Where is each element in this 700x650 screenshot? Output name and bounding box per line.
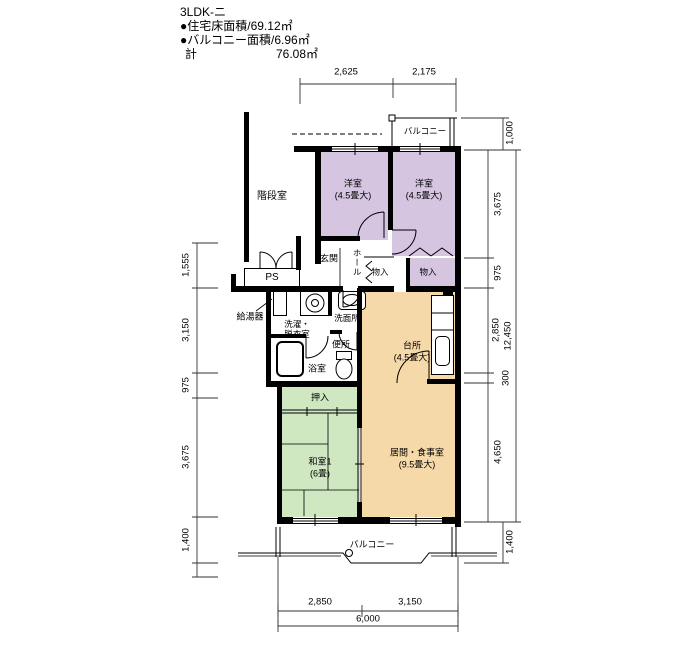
linework-overlay	[0, 0, 700, 650]
label-living-size: (9.5畳大)	[399, 460, 436, 471]
label-washitsu-name: 和室1	[308, 457, 331, 468]
wall-genkan-left	[296, 236, 301, 270]
total-label: 計	[185, 45, 197, 62]
label-water-heater: 給湯器	[236, 312, 263, 323]
toilet-tank-icon	[336, 351, 352, 360]
label-hall: ホール	[352, 249, 362, 278]
wall-washroom-toilet	[330, 330, 342, 334]
label-monoire1: 物入	[371, 267, 388, 277]
dim-right-1000: 1,000	[505, 121, 516, 145]
kitchen-sink-icon	[435, 336, 450, 366]
label-toilet: 便所	[332, 340, 350, 351]
dim-bottom-2: 3,150	[398, 597, 422, 608]
label-yoshitsu2-name: 洋室	[415, 179, 433, 190]
label-washroom: 洗面所	[334, 313, 360, 323]
dim-left-5: 1,400	[181, 528, 192, 552]
dim-bottom-1: 2,850	[308, 597, 332, 608]
wall-yoshitsu-divider	[388, 148, 393, 230]
label-stairwell: 階段室	[257, 191, 287, 203]
label-ps: PS	[265, 272, 278, 284]
wall-bottom-a	[277, 517, 293, 524]
label-oshiire: 押入	[311, 393, 329, 404]
wall-toilet-kitchen	[357, 288, 362, 385]
dim-left-4: 3,675	[181, 445, 192, 469]
toilet-bowl-icon	[336, 359, 352, 379]
dim-right-4650: 4,650	[493, 440, 504, 464]
wall-stair-left	[244, 112, 249, 262]
wall-laundry-right	[328, 288, 332, 316]
label-laundry-1: 洗濯・	[284, 319, 310, 329]
wall-mid-left	[231, 286, 343, 292]
label-balcony-top: バルコニー	[404, 126, 446, 136]
wall-bottom-b	[338, 517, 390, 524]
label-bath: 浴室	[308, 364, 326, 375]
dim-right-300: 300	[501, 370, 512, 386]
wall-bottom-c	[442, 517, 461, 524]
dim-top-1: 2,625	[334, 67, 358, 78]
dim-right-2850: 2,850	[491, 318, 502, 342]
dim-right-1400: 1,400	[505, 530, 516, 554]
washing-machine-icon	[300, 291, 330, 316]
label-kitchen-size: (4.5畳大)	[394, 353, 431, 364]
label-monoire2: 物入	[419, 267, 436, 277]
label-washitsu-size: (6畳)	[310, 469, 330, 480]
dim-left-2: 3,150	[181, 318, 192, 342]
window-yoshitsu1	[332, 146, 378, 152]
label-kitchen-name: 台所	[403, 341, 421, 352]
label-yoshitsu1-size: (4.5畳大)	[335, 191, 372, 202]
label-genkan: 玄関	[320, 254, 338, 265]
total-value: 76.08㎡	[276, 45, 318, 62]
wall-mid-left-stub	[231, 274, 236, 288]
label-balcony-bottom: バルコニー	[350, 540, 395, 551]
wall-monoire2-left	[406, 258, 410, 292]
wall-right	[455, 146, 461, 527]
dim-left-1: 1,555	[181, 253, 192, 277]
wall-yoshitsu1-left	[315, 148, 321, 264]
dim-bottom-total: 6,000	[356, 614, 380, 625]
bathtub-icon	[276, 341, 304, 377]
dim-right-3675: 3,675	[493, 192, 504, 216]
label-yoshitsu2-size: (4.5畳大)	[406, 191, 443, 202]
wall-mid-2	[358, 286, 394, 292]
window-washitsu	[293, 518, 338, 524]
floor-plan-page: 3LDK-ニ ●住宅床面積/69.12㎡ ●バルコニー面積/6.96㎡ 計 76…	[0, 0, 700, 650]
dim-right-12450: 12,450	[503, 321, 514, 350]
entrance-double-door	[260, 252, 292, 268]
wall-stub-300	[427, 379, 455, 384]
bath-door	[306, 336, 328, 358]
window-living	[390, 518, 442, 524]
dim-right-975: 975	[493, 265, 504, 281]
wall-washitsu-living-bottom	[357, 502, 362, 517]
room-yoshitsu2	[392, 150, 455, 256]
wall-washitsu-living-top	[357, 383, 362, 428]
wall-yoshitsu1-bottom	[315, 236, 360, 241]
label-yoshitsu1-name: 洋室	[344, 179, 362, 190]
dim-left-3: 975	[181, 377, 192, 393]
window-yoshitsu2	[400, 146, 440, 152]
dim-top-2: 2,175	[412, 67, 436, 78]
label-living-name: 居間・食事室	[390, 448, 444, 459]
water-heater-unit	[273, 290, 287, 316]
pillar-mark	[443, 288, 453, 296]
wall-washitsu-left	[277, 383, 282, 523]
wall-top-a	[294, 146, 332, 152]
label-laundry-2: 脱衣室	[284, 329, 310, 339]
